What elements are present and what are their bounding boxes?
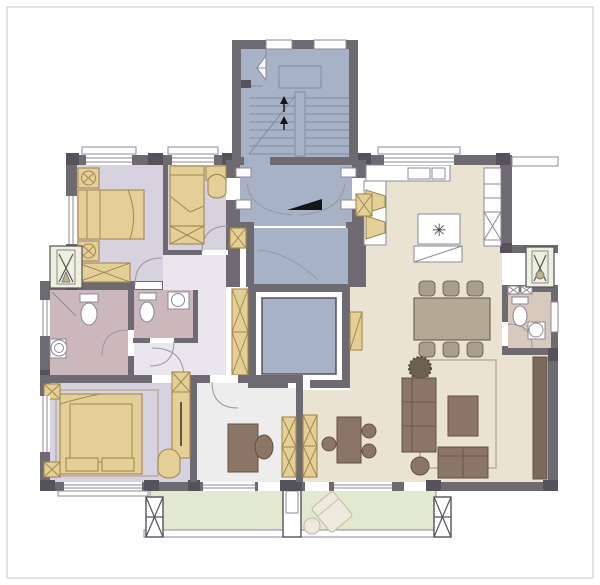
shared-lobby bbox=[226, 160, 366, 287]
cabinet-right-of-elevator bbox=[350, 312, 362, 350]
desk bbox=[228, 424, 258, 472]
wardrobe-tall bbox=[172, 372, 190, 458]
loveseat bbox=[438, 447, 488, 478]
ac-platform-right bbox=[526, 247, 554, 287]
pillow bbox=[102, 458, 134, 471]
round-sink bbox=[50, 339, 67, 358]
floor-plan-canvas: ✳ bbox=[0, 0, 600, 585]
master-window-left bbox=[40, 396, 50, 452]
nightstand bbox=[44, 462, 60, 477]
lobby-floor bbox=[240, 165, 352, 226]
sink bbox=[168, 292, 189, 309]
wardrobe bbox=[78, 263, 130, 282]
duct-shaft-left bbox=[230, 228, 246, 248]
bathroom-3-window bbox=[551, 302, 558, 332]
toilet bbox=[80, 294, 98, 325]
double-bed bbox=[78, 190, 144, 239]
living-window-bottom bbox=[334, 482, 392, 491]
coffee-table bbox=[448, 396, 478, 436]
stairwell bbox=[232, 40, 358, 167]
server-marker: ✳ bbox=[432, 221, 446, 241]
stool bbox=[362, 424, 376, 438]
bedroom-1-window-top bbox=[82, 147, 136, 165]
stair-window-1 bbox=[266, 40, 292, 49]
floor-plan-drawing: ✳ bbox=[0, 0, 600, 585]
tv-cabinet bbox=[533, 357, 547, 479]
elevator-lobby-floor bbox=[254, 228, 348, 287]
side-table bbox=[411, 457, 429, 475]
kitchen-window-top bbox=[378, 147, 460, 165]
left-balcony bbox=[150, 490, 286, 532]
sofa-long bbox=[402, 378, 436, 452]
storage-chest bbox=[170, 226, 204, 244]
vanity-desk bbox=[206, 166, 226, 198]
dining-chairs-bottom bbox=[419, 342, 483, 357]
elevator bbox=[248, 284, 350, 388]
right-balcony-door-2 bbox=[404, 482, 426, 491]
pillow bbox=[66, 458, 98, 471]
bedroom-1-window-left bbox=[66, 196, 77, 244]
right-balcony-door-1 bbox=[305, 482, 329, 491]
balconies bbox=[144, 487, 451, 537]
nightstand bbox=[78, 168, 99, 188]
tea-cabinet bbox=[303, 415, 317, 477]
left-balcony-door bbox=[258, 482, 280, 491]
dressing-stool bbox=[158, 449, 180, 478]
sink-basin-2 bbox=[432, 168, 445, 179]
elevator-car bbox=[262, 298, 336, 374]
bedroom-2-window-top bbox=[168, 147, 218, 165]
sink-basin-1 bbox=[408, 168, 430, 179]
potted-plant bbox=[409, 357, 431, 379]
single-bed bbox=[170, 166, 204, 226]
stair-stringer bbox=[295, 92, 305, 156]
sideboard bbox=[414, 246, 462, 262]
side-table-balcony bbox=[304, 518, 320, 534]
master-bed bbox=[60, 394, 142, 474]
fridge bbox=[484, 212, 501, 240]
serving-table: ✳ bbox=[418, 214, 460, 244]
tea-table bbox=[337, 417, 361, 463]
stair-window-2 bbox=[314, 40, 346, 49]
desk-chair bbox=[255, 435, 273, 459]
balcony-column-left bbox=[146, 497, 163, 537]
stool bbox=[362, 444, 376, 458]
toilet bbox=[512, 297, 528, 326]
study-window-bottom bbox=[203, 482, 255, 491]
dining-chairs-top bbox=[419, 281, 483, 296]
bathroom-1-window-left bbox=[40, 300, 50, 336]
dining-table bbox=[414, 298, 490, 340]
balcony-column-right bbox=[434, 497, 451, 537]
ac-platform-left bbox=[50, 246, 82, 288]
vanity-chair bbox=[208, 174, 226, 198]
master-window-bottom bbox=[58, 482, 148, 496]
left-balcony-railing bbox=[144, 530, 292, 537]
hall-cabinet-left-unit bbox=[232, 289, 248, 375]
bookcase bbox=[282, 417, 296, 477]
top-right-ledge bbox=[512, 157, 558, 166]
stool bbox=[322, 437, 336, 451]
round-sink bbox=[528, 322, 545, 339]
ac-unit-glyph bbox=[536, 271, 544, 279]
duct-shaft-right bbox=[356, 194, 372, 216]
